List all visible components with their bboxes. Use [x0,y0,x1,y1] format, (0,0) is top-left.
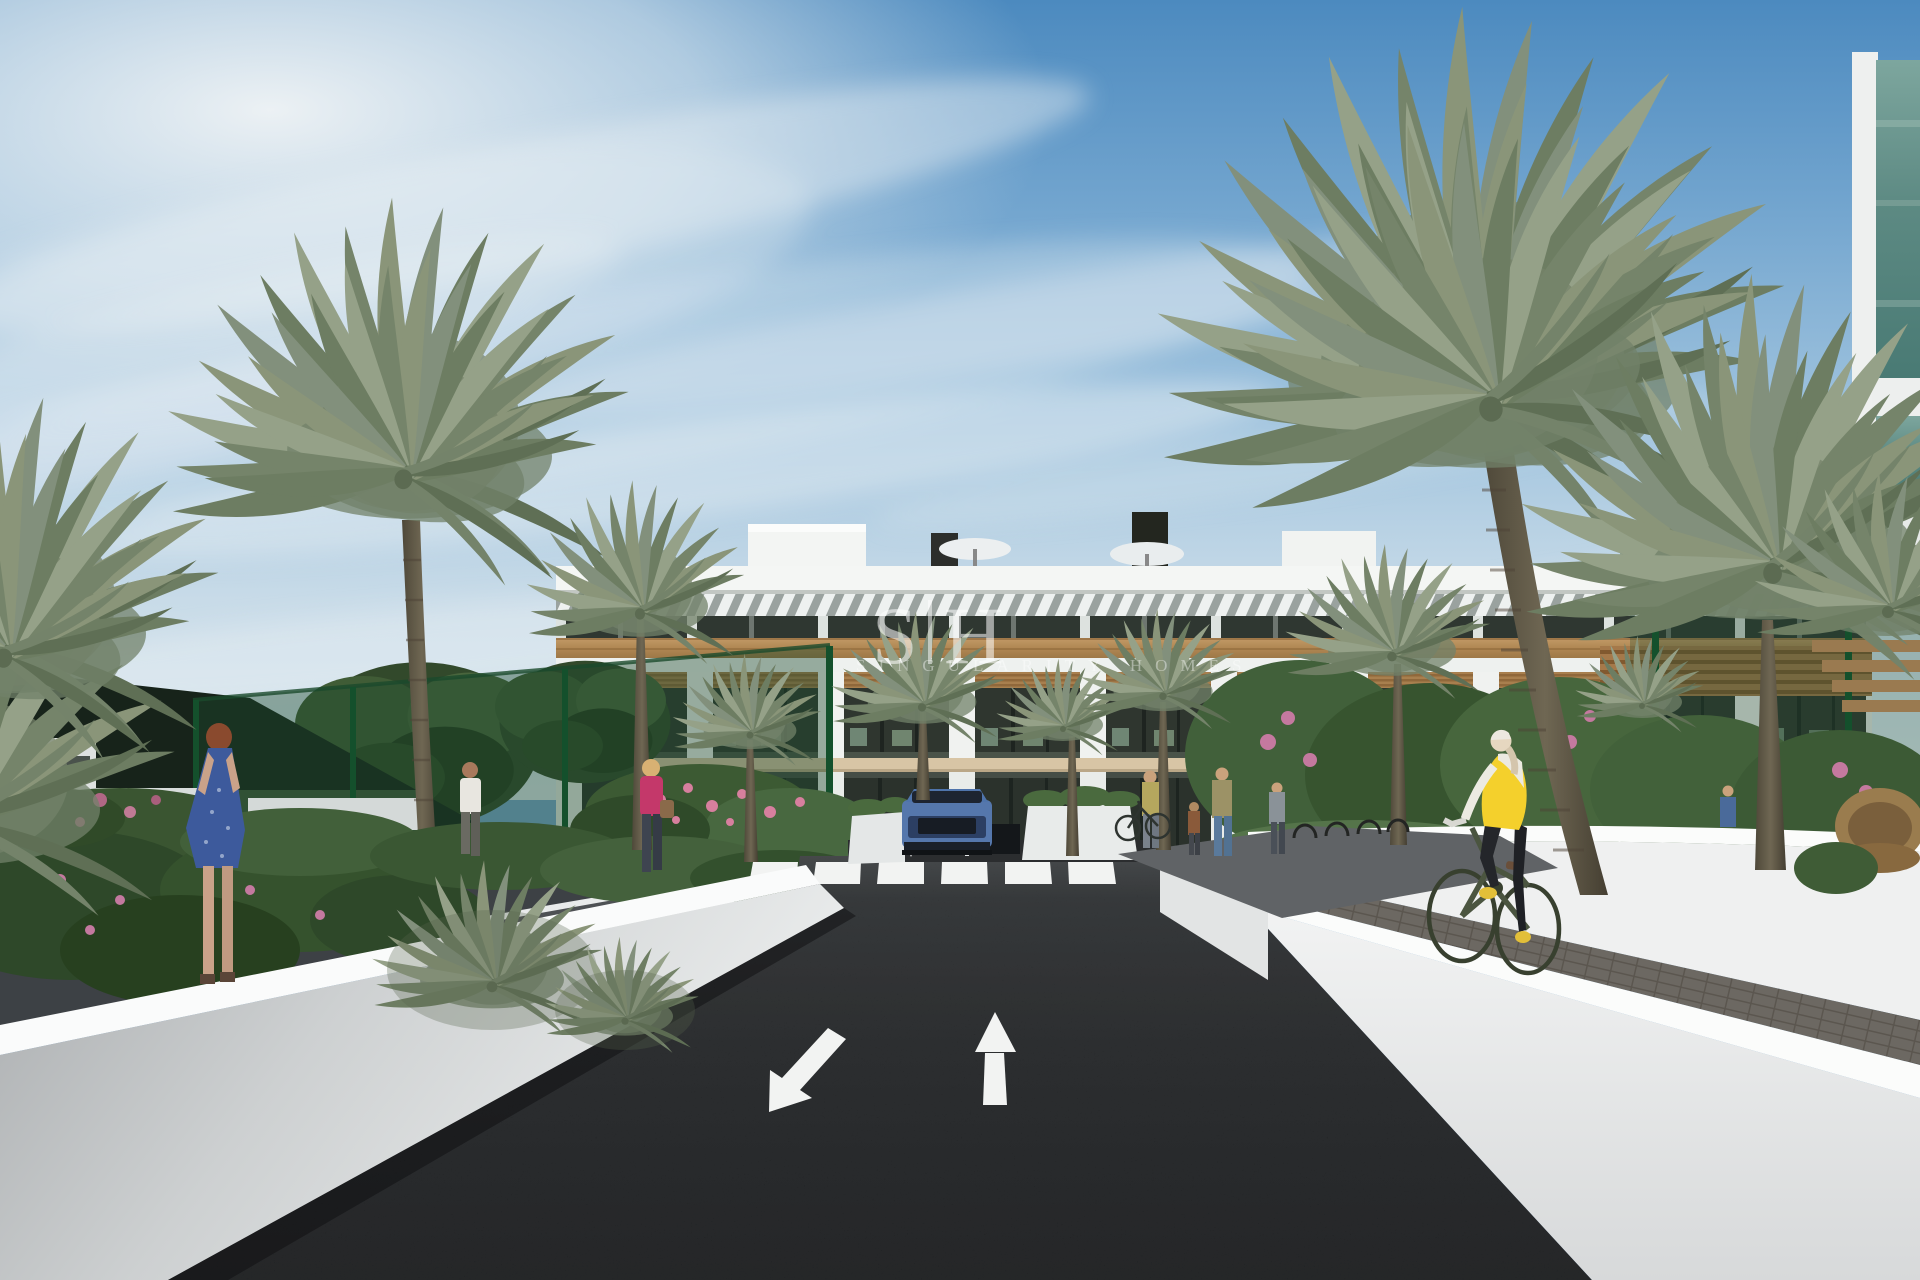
svg-text:SINGULARITY HOMES: SINGULARITY HOMES [856,656,1254,675]
